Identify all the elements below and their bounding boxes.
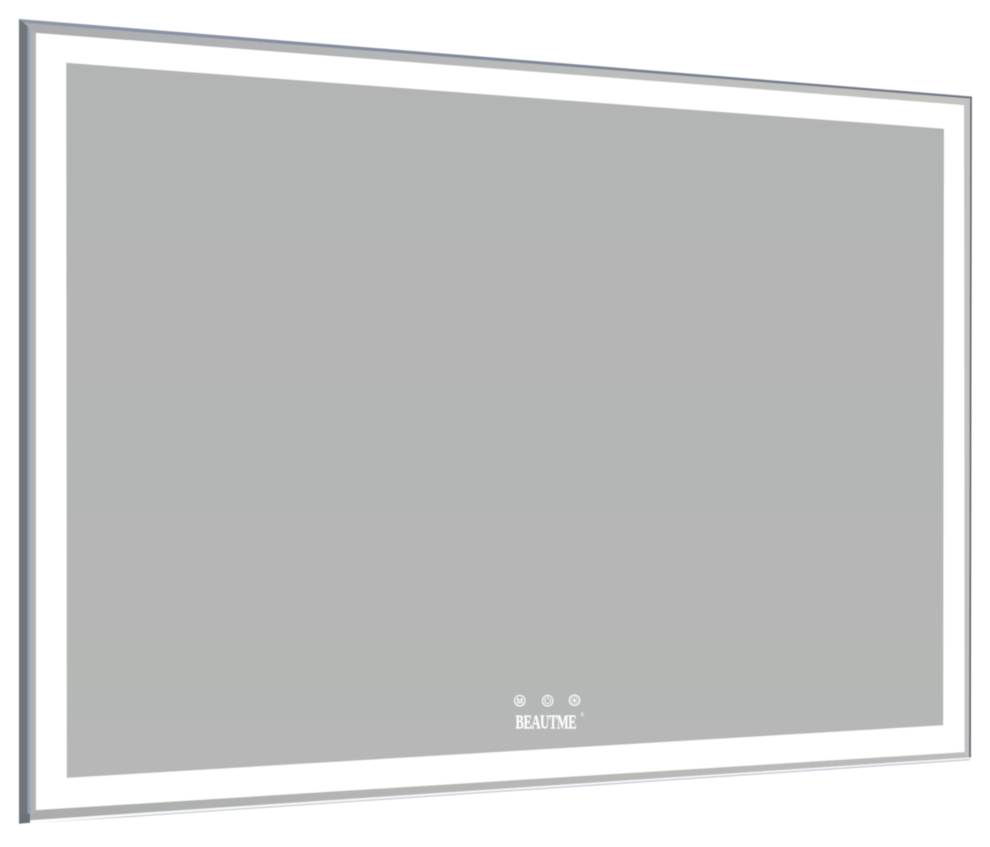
svg-text:®: ® bbox=[581, 712, 585, 719]
svg-text:M: M bbox=[516, 697, 523, 706]
svg-text:BEAUTME: BEAUTME bbox=[516, 711, 577, 734]
